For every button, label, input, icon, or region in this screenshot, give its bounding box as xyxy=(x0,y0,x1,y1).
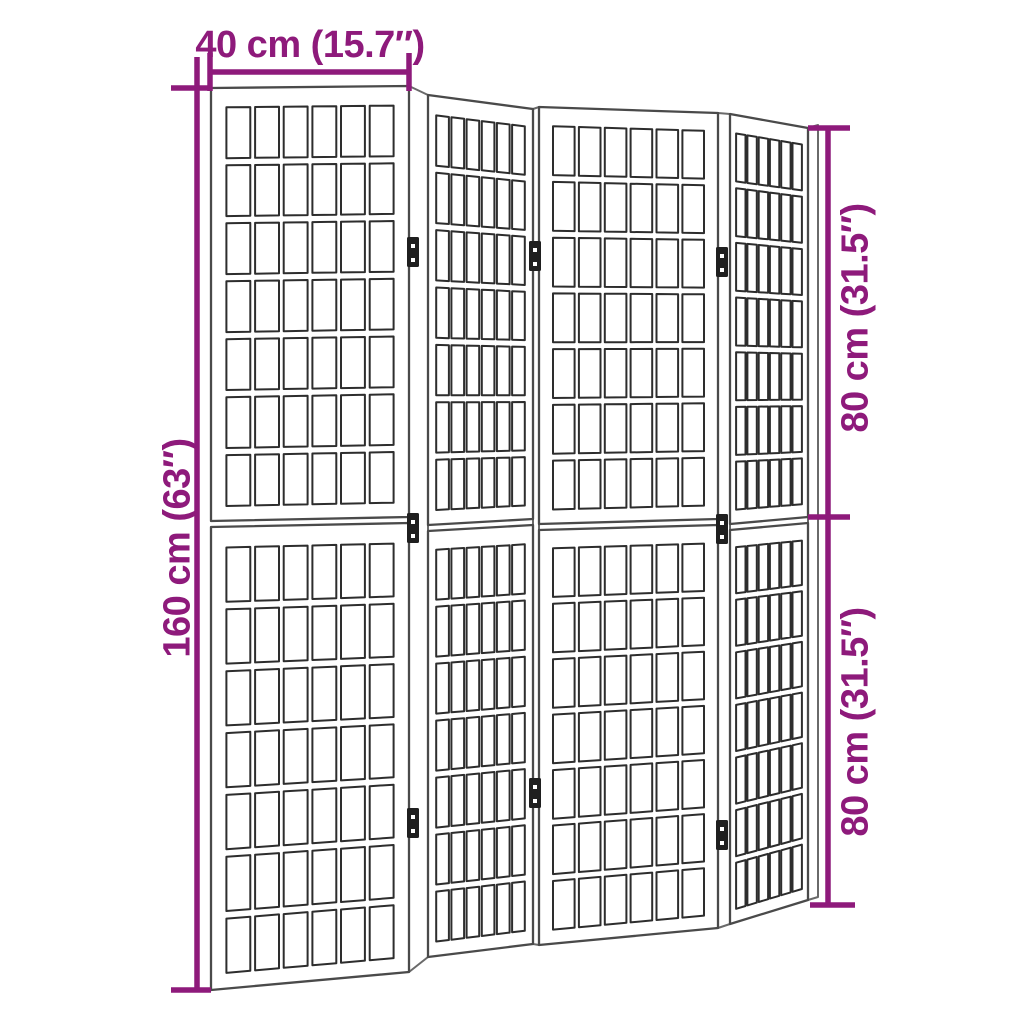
hinge-icon xyxy=(529,778,541,808)
panel-2-upper xyxy=(428,95,533,525)
hinge-icon xyxy=(407,808,419,838)
left-height-dimension: 160 cm (63″) xyxy=(156,57,211,990)
panel-1-upper xyxy=(211,86,409,521)
hinge-icon xyxy=(529,241,541,271)
hinge-icon xyxy=(716,820,728,850)
panel-3-lower xyxy=(539,525,718,945)
panel-3-upper xyxy=(539,107,718,524)
left-height-label: 160 cm (63″) xyxy=(156,438,198,657)
fold-edge-strip-4 xyxy=(808,125,818,900)
hinge-icon xyxy=(716,514,728,544)
right-upper-height-label: 80 cm (31.5″) xyxy=(834,203,876,432)
hinge-icon xyxy=(407,513,419,543)
product-dimension-illustration: 40 cm (15.7″) 160 cm (63″) 80 cm (31.5″)… xyxy=(0,0,1024,1024)
hinge-icon xyxy=(407,237,419,267)
room-divider-drawing xyxy=(211,86,818,990)
right-lower-height-label: 80 cm (31.5″) xyxy=(834,607,876,836)
panel-2-lower xyxy=(428,525,533,957)
top-width-dimension: 40 cm (15.7″) xyxy=(195,24,424,91)
top-width-label: 40 cm (15.7″) xyxy=(195,24,424,66)
panel-4-upper xyxy=(730,114,808,524)
dimension-diagram-stage: 40 cm (15.7″) 160 cm (63″) 80 cm (31.5″)… xyxy=(0,0,1024,1024)
hinge-icon xyxy=(716,247,728,277)
panel-1-lower xyxy=(211,523,409,990)
panel-4-lower xyxy=(730,523,808,924)
